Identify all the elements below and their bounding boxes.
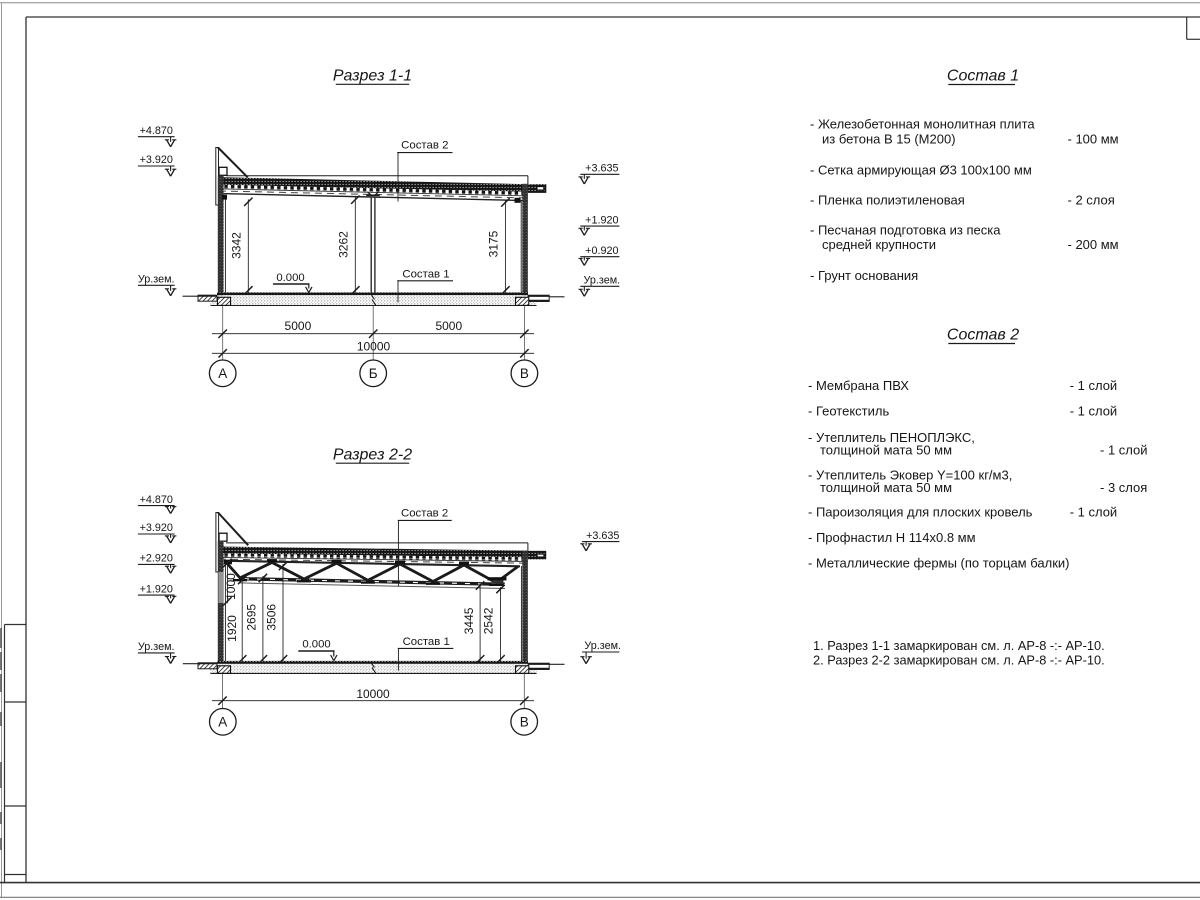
svg-text:Состав 2: Состав 2 [947,327,1019,344]
svg-text:+4.870: +4.870 [140,125,173,137]
svg-text:- Пароизоляция для плоских кро: - Пароизоляция для плоских кровель [808,505,1033,520]
svg-text:+0.920: +0.920 [585,245,618,257]
svg-text:- Мембрана ПВХ: - Мембрана ПВХ [808,378,909,393]
svg-text:3175: 3175 [487,230,501,257]
svg-text:- 1 слой: - 1 слой [1100,443,1148,458]
svg-text:Состав 1: Состав 1 [403,636,450,648]
svg-text:- Геотекстиль: - Геотекстиль [808,404,889,419]
svg-text:- 2 слоя: - 2 слоя [1068,193,1115,208]
svg-text:Ур.зем.: Ур.зем. [584,640,621,652]
svg-text:- 1 слой: - 1 слой [1070,378,1118,393]
svg-text:- Сетка армирующая Ø3 100х100: - Сетка армирующая Ø3 100х100 мм [810,163,1032,178]
svg-text:+1.920: +1.920 [140,583,173,595]
svg-text:из бетона В 15 (М200): из бетона В 15 (М200) [822,131,956,146]
svg-text:В: В [520,366,529,381]
svg-text:- Железобетонная монолитная п: - Железобетонная монолитная плита [810,117,1035,132]
svg-text:- 3 слоя: - 3 слоя [1100,480,1147,495]
svg-text:1. Разрез 1-1 замаркирован см.: 1. Разрез 1-1 замаркирован см. л. АР-8 -… [813,638,1105,653]
svg-text:3342: 3342 [230,232,244,259]
svg-text:- 100 мм: - 100 мм [1068,131,1119,146]
svg-text:А: А [218,366,227,381]
svg-text:Разрез 2-2: Разрез 2-2 [333,446,412,463]
svg-text:- Профнастил Н 114х0.8 мм: - Профнастил Н 114х0.8 мм [808,530,976,545]
svg-text:Состав 1: Состав 1 [402,268,449,280]
svg-text:средней крупности: средней крупности [822,237,936,252]
svg-text:- Грунт основания: - Грунт основания [810,268,918,283]
svg-text:Ур.зем.: Ур.зем. [138,274,175,286]
svg-text:А: А [218,715,227,730]
svg-text:+3.635: +3.635 [585,163,618,175]
svg-text:Ур.зем.: Ур.зем. [584,275,621,287]
svg-text:Ур.зем.: Ур.зем. [138,641,175,653]
svg-text:+2.920: +2.920 [140,553,173,565]
svg-text:2542: 2542 [481,607,495,634]
svg-text:+3.635: +3.635 [586,530,619,542]
svg-text:5000: 5000 [285,319,312,333]
svg-text:1000: 1000 [224,573,238,600]
svg-text:- 1 слой: - 1 слой [1070,505,1118,520]
svg-text:- 1 слой: - 1 слой [1070,404,1118,419]
svg-text:10000: 10000 [356,687,390,701]
svg-text:В: В [520,715,529,730]
svg-text:+4.870: +4.870 [140,494,173,506]
svg-text:3262: 3262 [337,231,351,258]
svg-text:+1.920: +1.920 [585,214,618,226]
svg-text:1920: 1920 [225,615,239,642]
svg-text:3506: 3506 [265,604,279,631]
svg-text:0.000: 0.000 [276,272,304,284]
svg-text:- 200 мм: - 200 мм [1068,237,1119,252]
svg-text:Состав 2: Состав 2 [401,140,448,152]
svg-text:10000: 10000 [357,340,391,354]
svg-text:+3.920: +3.920 [140,154,173,166]
svg-text:Б: Б [369,366,378,381]
svg-text:3445: 3445 [462,607,476,634]
svg-text:2. Разрез 2-2 замаркирован см.: 2. Разрез 2-2 замаркирован см. л. АР-8 -… [813,653,1105,668]
svg-text:- Металлические фермы (по торц: - Металлические фермы (по торцам балки) [808,556,1069,571]
svg-text:Состав 1: Состав 1 [947,68,1019,85]
svg-text:толщиной мата 50 мм: толщиной мата 50 мм [820,480,952,495]
svg-text:- Пленка полиэтиленовая: - Пленка полиэтиленовая [810,193,965,208]
svg-text:толщиной мата 50 мм: толщиной мата 50 мм [820,443,952,458]
svg-text:+3.920: +3.920 [140,522,173,534]
svg-text:5000: 5000 [435,319,462,333]
svg-text:- Песчаная подготовка из песка: - Песчаная подготовка из песка [810,223,1001,238]
svg-text:2695: 2695 [245,604,259,631]
svg-text:0.000: 0.000 [302,639,330,651]
svg-text:Разрез 1-1: Разрез 1-1 [333,68,412,85]
svg-text:Состав 2: Состав 2 [401,508,448,520]
